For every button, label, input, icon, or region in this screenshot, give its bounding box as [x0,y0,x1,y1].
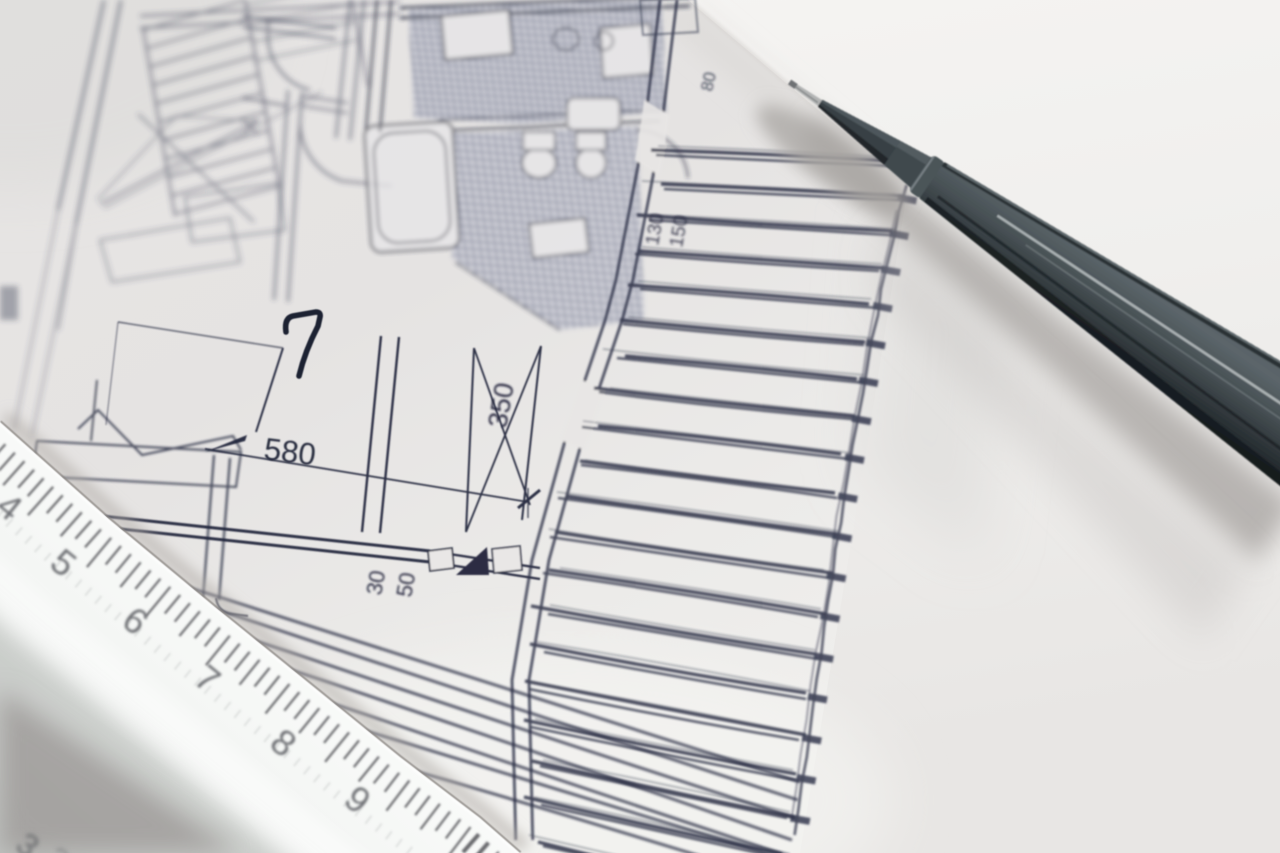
svg-text:50: 50 [391,570,420,598]
svg-text:80: 80 [697,70,720,92]
svg-text:30: 30 [361,568,390,596]
svg-text:580: 580 [262,431,318,472]
